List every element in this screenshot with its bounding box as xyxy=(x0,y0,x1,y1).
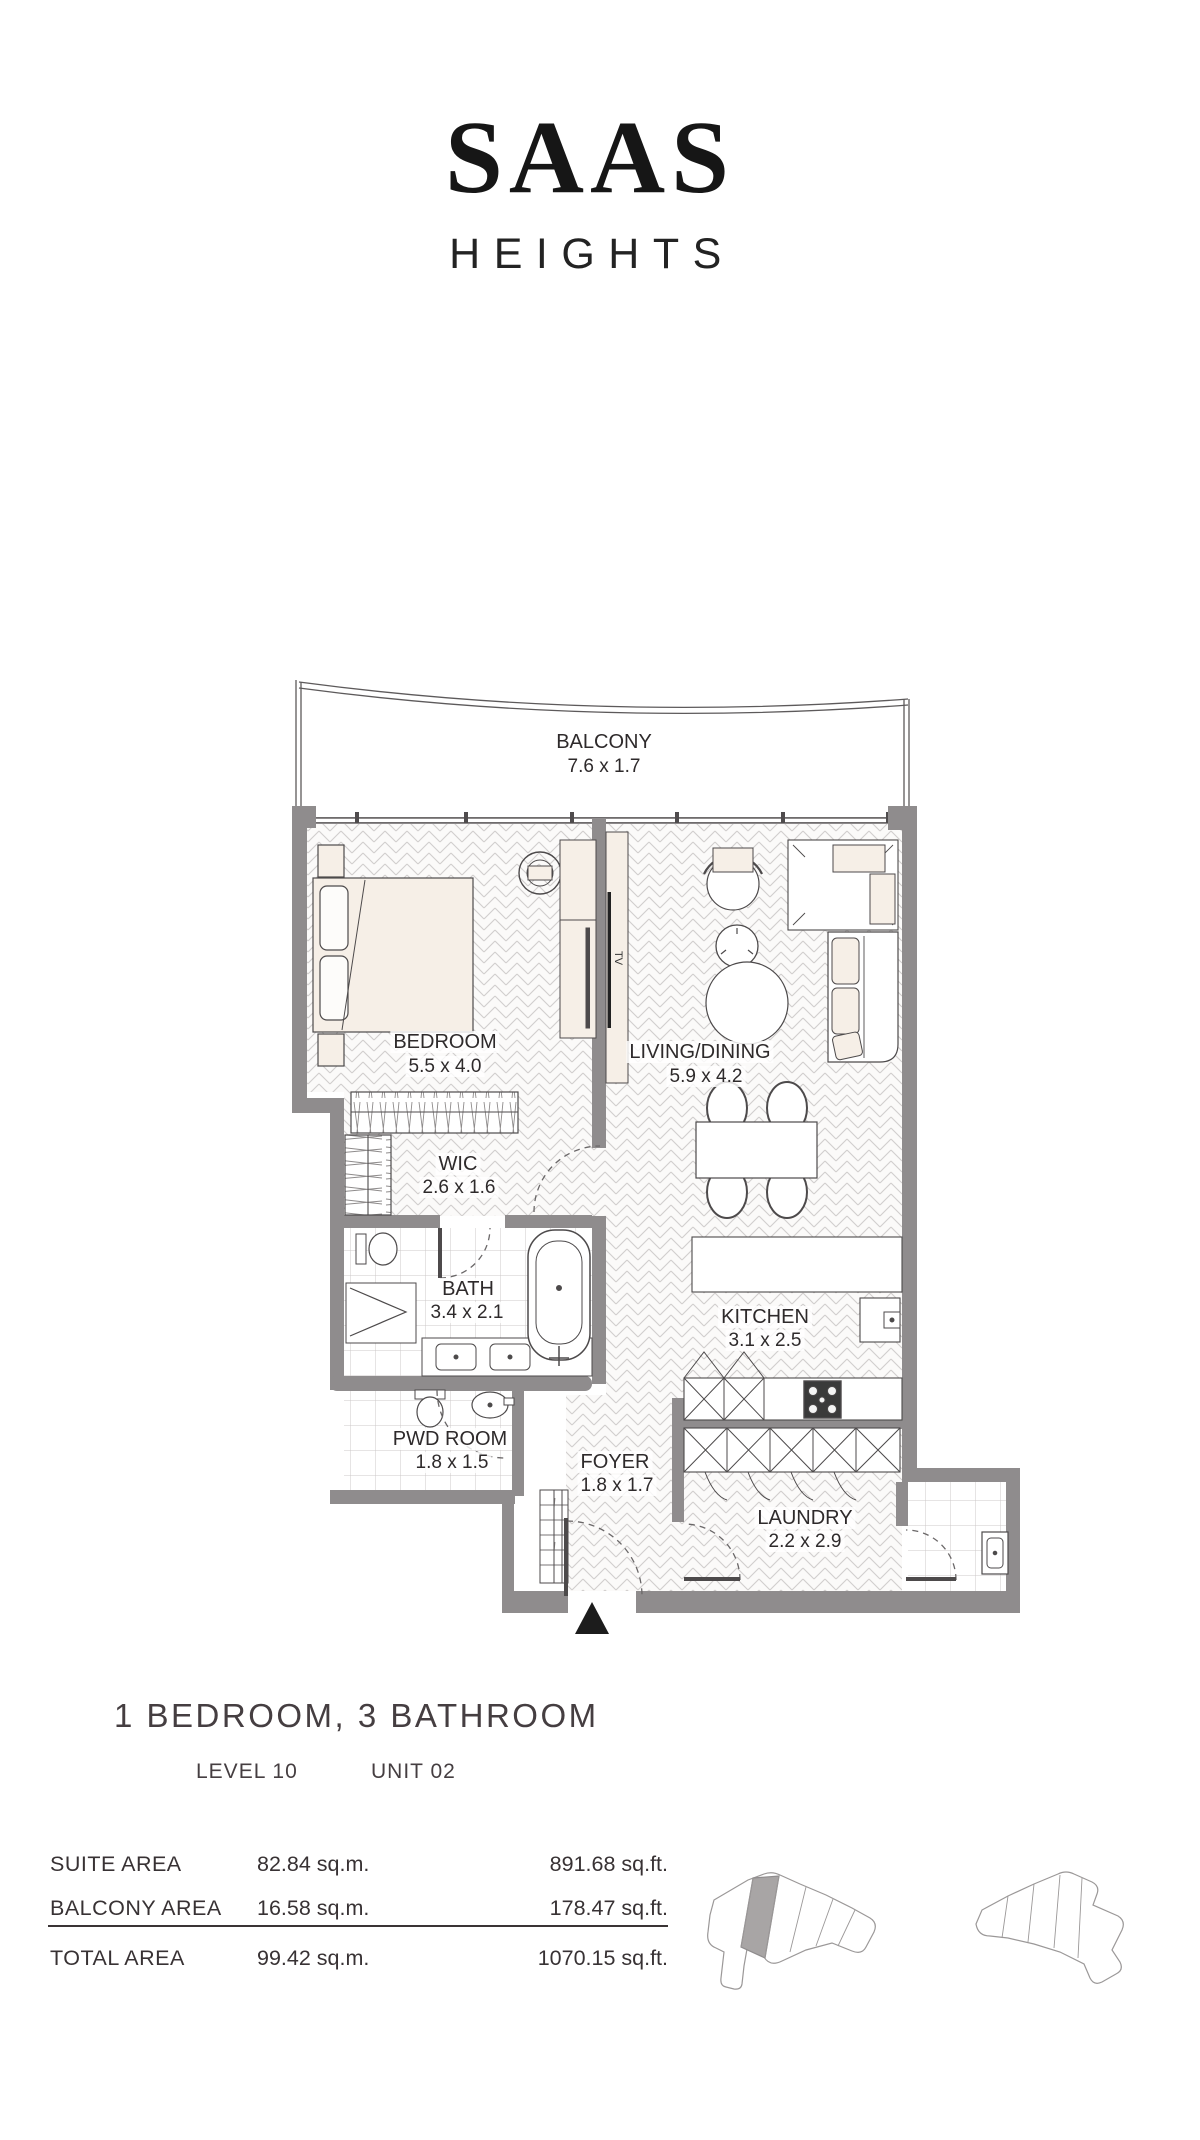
room-dims-bedroom: 5.5 x 4.0 xyxy=(406,1056,485,1077)
room-dims-wic: 2.6 x 1.6 xyxy=(420,1177,499,1198)
entry-closet xyxy=(540,1490,568,1583)
kitchen-island xyxy=(692,1237,902,1292)
room-label-foyer: FOYER xyxy=(578,1451,653,1473)
bathtub xyxy=(528,1230,590,1366)
area-sqm: 82.84 sq.m. xyxy=(257,1852,369,1877)
room-label-kitchen: KITCHEN xyxy=(718,1306,812,1328)
room-dims-bath: 3.4 x 2.1 xyxy=(428,1302,507,1323)
dining-table xyxy=(696,1122,817,1178)
area-sqft: 891.68 sq.ft. xyxy=(458,1852,668,1877)
floorplan-drawing xyxy=(0,0,1200,2140)
toilet xyxy=(369,1233,397,1265)
bathroom3-fixtures xyxy=(982,1532,1008,1574)
room-label-balcony: BALCONY xyxy=(553,731,655,753)
toilet xyxy=(417,1397,443,1427)
sofa xyxy=(828,932,898,1062)
brand-logo: SAAS xyxy=(445,106,735,210)
room-label-wic: WIC xyxy=(436,1153,481,1175)
room-dims-balcony: 7.6 x 1.7 xyxy=(565,756,644,777)
room-dims-foyer: 1.8 x 1.7 xyxy=(578,1475,657,1496)
area-sqft: 178.47 sq.ft. xyxy=(458,1896,668,1921)
tv-label: TV xyxy=(612,951,624,965)
shower xyxy=(346,1283,416,1343)
room-label-living-dining: LIVING/DINING xyxy=(626,1041,773,1063)
table-row-suite: SUITE AREA 82.84 sq.m. 891.68 sq.ft. xyxy=(0,1852,700,1878)
unit-title: 1 BEDROOM, 3 BATHROOM xyxy=(114,1697,599,1735)
nightstand xyxy=(318,845,344,877)
floorplan-page: SAAS HEIGHTS BALCONY 7.6 x 1.7 BEDROOM 5… xyxy=(0,0,1200,2140)
bedroom-wardrobe xyxy=(560,840,596,1038)
area-sqm: 99.42 sq.m. xyxy=(257,1946,369,1971)
table-row-total: TOTAL AREA 99.42 sq.m. 1070.15 sq.ft. xyxy=(0,1946,700,1972)
entry-arrow xyxy=(575,1602,609,1634)
unit-number: UNIT 02 xyxy=(371,1760,456,1784)
keyplan-left xyxy=(708,1873,876,1989)
room-label-bath: BATH xyxy=(439,1278,497,1300)
room-dims-living-dining: 5.9 x 4.2 xyxy=(667,1066,746,1087)
room-dims-kitchen: 3.1 x 2.5 xyxy=(726,1330,805,1351)
tv-screen xyxy=(608,892,612,1028)
room-label-pwd-room: PWD ROOM xyxy=(390,1428,510,1450)
area-sqft: 1070.15 sq.ft. xyxy=(458,1946,668,1971)
armchair xyxy=(704,848,762,910)
daybed xyxy=(788,840,898,930)
table-row-balcony: BALCONY AREA 16.58 sq.m. 178.47 sq.ft. xyxy=(0,1896,700,1922)
nightstand xyxy=(318,1034,344,1066)
area-label: BALCONY AREA xyxy=(50,1896,222,1921)
brand-tagline: HEIGHTS xyxy=(449,233,735,276)
room-label-bedroom: BEDROOM xyxy=(390,1031,499,1053)
table-divider xyxy=(48,1925,668,1927)
room-dims-pwd-room: 1.8 x 1.5 xyxy=(413,1452,492,1473)
keyplan-right xyxy=(976,1872,1123,1983)
room-dims-laundry: 2.2 x 2.9 xyxy=(766,1531,845,1552)
area-label: TOTAL AREA xyxy=(50,1946,185,1971)
unit-level: LEVEL 10 xyxy=(196,1760,298,1784)
area-sqm: 16.58 sq.m. xyxy=(257,1896,369,1921)
room-label-laundry: LAUNDRY xyxy=(754,1507,855,1529)
area-label: SUITE AREA xyxy=(50,1852,182,1877)
